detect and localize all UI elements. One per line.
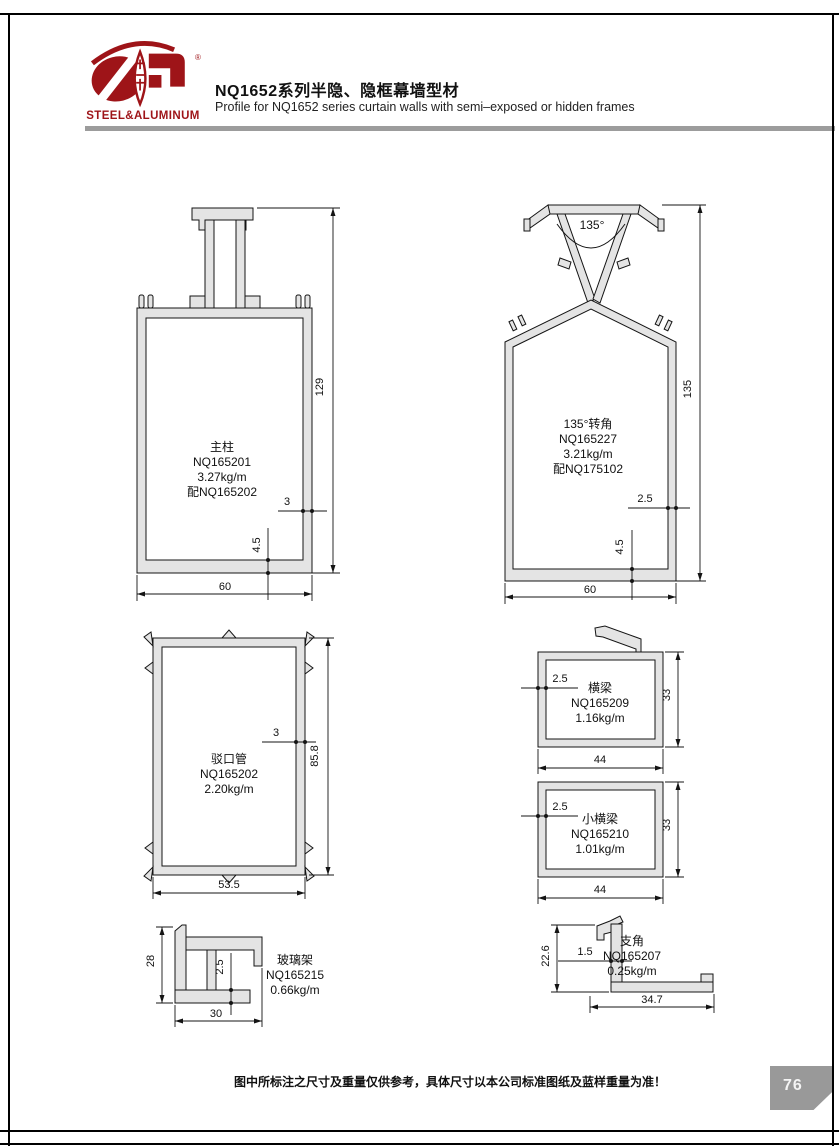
- company-logo: [86, 40, 198, 110]
- dim-beam-height: 33: [661, 678, 673, 712]
- dim-glass-rack-width: 30: [202, 1008, 230, 1020]
- header-divider: [85, 126, 835, 131]
- dim-corner-bottom-wall: 4.5: [614, 530, 626, 564]
- dim-small-beam-width: 44: [586, 884, 614, 896]
- dim-small-beam-height: 33: [661, 808, 673, 842]
- catalog-page: ® STEEL&ALUMINUM NQ1652系列半隐、隐框幕墙型材 Profi…: [0, 0, 839, 1146]
- profile-code: NQ165201: [157, 455, 287, 470]
- profile-weight: 2.20kg/m: [164, 782, 294, 797]
- profile-weight: 3.21kg/m: [523, 447, 653, 462]
- dim-corner-height: 135: [682, 372, 694, 406]
- profile-name: 小横梁: [546, 812, 654, 827]
- page-border-left: [8, 13, 10, 1146]
- glass-rack-label-block: 玻璃架 NQ165215 0.66kg/m: [250, 953, 340, 998]
- profile-name: 主柱: [157, 440, 287, 455]
- joint-tube-label-block: 驳口管 NQ165202 2.20kg/m: [164, 752, 294, 797]
- mullion-cavity: [146, 318, 303, 560]
- profile-weight: 1.16kg/m: [546, 711, 654, 726]
- dim-joint-tube-height: 85.8: [309, 739, 321, 773]
- profile-name: 驳口管: [164, 752, 294, 767]
- page-number: 76: [783, 1077, 803, 1095]
- profile-code: NQ165207: [592, 949, 672, 964]
- bracket-bottom-bar: [611, 982, 713, 992]
- corner-shape: [505, 205, 676, 581]
- profile-pair: 配NQ165202: [157, 485, 287, 500]
- drawing-mullion: [130, 195, 345, 625]
- page-border-right: [832, 13, 834, 1146]
- page-edge-bottom: [0, 1143, 839, 1145]
- profile-pair: 配NQ175102: [523, 462, 653, 477]
- page-border-bottom: [0, 1130, 839, 1132]
- logo-emblem: [87, 43, 185, 107]
- profile-name: 玻璃架: [250, 953, 340, 968]
- page-border-top: [0, 13, 839, 15]
- mullion-label-block: 主柱 NQ165201 3.27kg/m 配NQ165202: [157, 440, 287, 500]
- dim-bracket-height: 22.6: [540, 939, 552, 973]
- beam-label-block: 横梁 NQ165209 1.16kg/m: [546, 681, 654, 726]
- profile-name: 横梁: [546, 681, 654, 696]
- dim-mullion-height: 129: [314, 370, 326, 404]
- page-number-tab: 76: [770, 1066, 834, 1110]
- profile-name: 支角: [592, 934, 672, 949]
- mullion-shape: [137, 208, 312, 573]
- small-beam-label-block: 小横梁 NQ165210 1.01kg/m: [546, 812, 654, 857]
- dim-joint-tube-width: 53.5: [211, 879, 247, 891]
- bracket-label-block: 支角 NQ165207 0.25kg/m: [592, 934, 672, 979]
- profile-weight: 0.66kg/m: [250, 983, 340, 998]
- dim-glass-rack-wall: 2.5: [214, 950, 226, 984]
- page-subtitle-en: Profile for NQ1652 series curtain walls …: [215, 100, 635, 114]
- profile-weight: 1.01kg/m: [546, 842, 654, 857]
- dim-bracket-width: 34.7: [634, 994, 670, 1006]
- page-title-cn: NQ1652系列半隐、隐框幕墙型材: [215, 77, 459, 101]
- dim-mullion-bottom-wall: 4.5: [251, 528, 263, 562]
- profile-code: NQ165227: [523, 432, 653, 447]
- bracket-foot: [701, 974, 713, 982]
- logo-registered-mark: ®: [195, 53, 201, 62]
- profile-code: NQ165209: [546, 696, 654, 711]
- dim-beam-width: 44: [586, 754, 614, 766]
- footer-disclaimer: 图中所标注之尺寸及重量仅供参考，具体尺寸以本公司标准图纸及蓝样重量为准！: [130, 1073, 770, 1090]
- dim-mullion-width: 60: [210, 581, 240, 593]
- beam-hook: [595, 626, 641, 652]
- profile-code: NQ165202: [164, 767, 294, 782]
- dim-corner-wall: 2.5: [633, 493, 657, 505]
- dim-corner-width: 60: [575, 584, 605, 596]
- drawing-corner: [495, 195, 710, 615]
- profile-code: NQ165215: [250, 968, 340, 983]
- profile-name: 135°转角: [523, 417, 653, 432]
- profile-weight: 0.25kg/m: [592, 964, 672, 979]
- corner-label-block: 135°转角 NQ165227 3.21kg/m 配NQ175102: [523, 417, 653, 477]
- dim-corner-angle: 135°: [572, 218, 612, 232]
- glass-rack-bottom-bar: [175, 990, 250, 1003]
- profile-code: NQ165210: [546, 827, 654, 842]
- logo-wordmark: STEEL&ALUMINUM: [84, 110, 202, 122]
- dim-joint-tube-wall: 3: [270, 727, 282, 739]
- dim-glass-rack-height: 28: [145, 944, 157, 978]
- profile-weight: 3.27kg/m: [157, 470, 287, 485]
